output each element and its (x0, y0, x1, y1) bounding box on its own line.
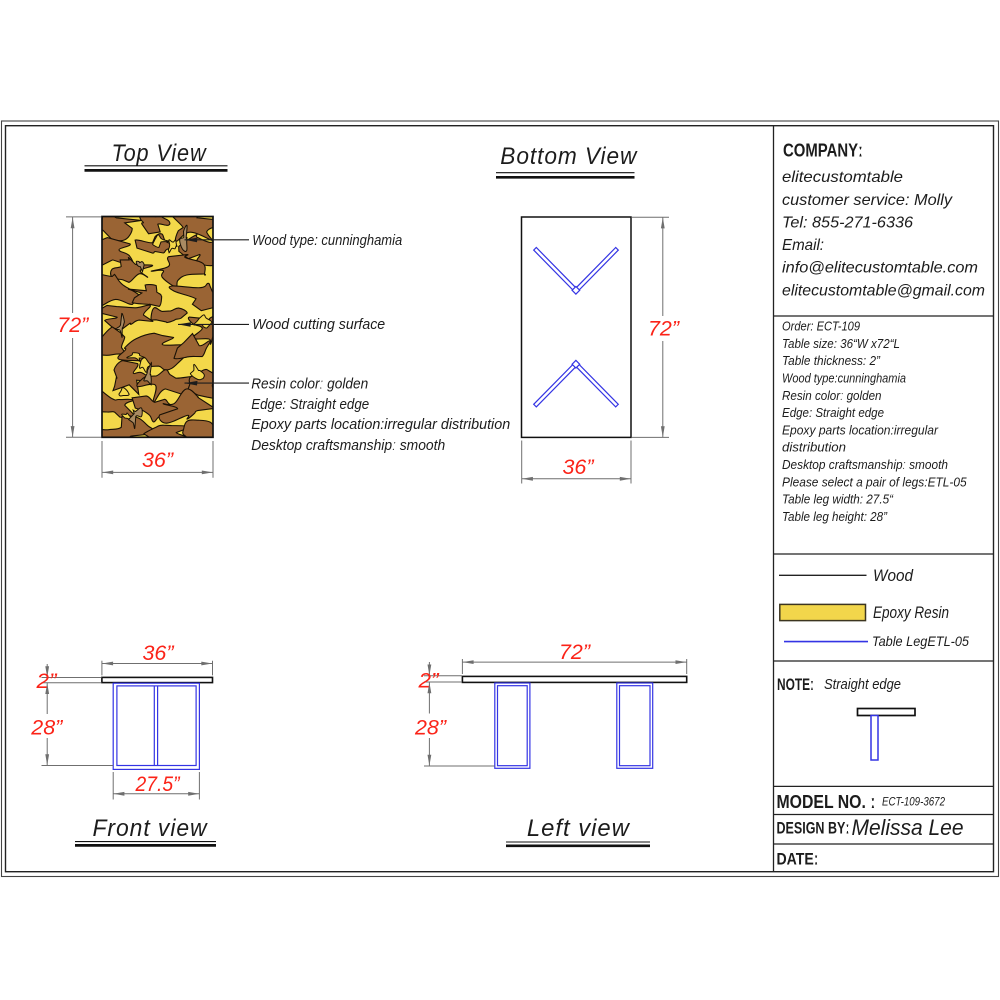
svg-text:Wood cutting surface: Wood cutting surface (252, 316, 385, 333)
svg-text:COMPANYː: COMPANYː (783, 140, 863, 160)
svg-text:Table thickness: 2”: Table thickness: 2” (782, 353, 881, 368)
svg-text:MODEL NO. ː: MODEL NO. ː (777, 792, 876, 812)
svg-text:28”: 28” (30, 717, 63, 740)
svg-text:DATEː: DATEː (777, 850, 819, 869)
svg-text:info@elitecustomtable.com: info@elitecustomtable.com (782, 260, 978, 277)
svg-text:elitecustomtable@gmail.com: elitecustomtable@gmail.com (782, 283, 985, 300)
svg-text:28”: 28” (414, 717, 447, 740)
svg-text:customer service: Molly: customer service: Molly (782, 192, 953, 209)
svg-text:Please select a pair of legs:E: Please select a pair of legs:ETL-05 (782, 474, 967, 489)
svg-text:Desktop craftsmanshipː smooth: Desktop craftsmanshipː smooth (251, 437, 445, 454)
svg-text:distribution: distribution (782, 440, 846, 455)
svg-text:NOTEː: NOTEː (777, 676, 814, 694)
svg-text:36”: 36” (142, 449, 174, 472)
svg-text:Table leg width: 27.5“: Table leg width: 27.5“ (782, 492, 894, 507)
svg-text:Melissa Lee: Melissa Lee (852, 815, 964, 840)
svg-text:27.5”: 27.5” (135, 773, 181, 796)
svg-text:Desktop craftsmanshipː smooth: Desktop craftsmanshipː smooth (782, 457, 948, 472)
svg-text:Left view: Left view (527, 815, 631, 842)
svg-text:Table leg height: 28”: Table leg height: 28” (782, 509, 888, 524)
svg-text:Table size: 36“W x72“L: Table size: 36“W x72“L (782, 336, 900, 351)
svg-text:Wood: Wood (873, 566, 913, 585)
svg-text:Wood type: cunninghamia: Wood type: cunninghamia (252, 232, 402, 249)
svg-text:Tel: 855-271-6336: Tel: 855-271-6336 (782, 215, 913, 232)
svg-text:Wood type:cunninghamia: Wood type:cunninghamia (782, 371, 906, 386)
svg-text:Straight edge: Straight edge (824, 676, 901, 693)
svg-text:72”: 72” (648, 318, 680, 341)
svg-text:DESIGN BYː: DESIGN BYː (777, 819, 850, 838)
svg-text:Edge: Straight edge: Edge: Straight edge (251, 396, 369, 413)
svg-text:Front view: Front view (93, 815, 209, 842)
svg-text:Epoxy Resin: Epoxy Resin (873, 603, 949, 622)
svg-text:36”: 36” (563, 456, 595, 479)
svg-text:Bottom View: Bottom View (500, 143, 638, 170)
svg-text:Resin colorː golden: Resin colorː golden (251, 376, 368, 393)
svg-text:72”: 72” (57, 314, 89, 337)
svg-text:ECT-109-3672: ECT-109-3672 (882, 797, 946, 809)
svg-text:72”: 72” (559, 641, 591, 664)
svg-text:2”: 2” (417, 670, 439, 693)
svg-text:Edge: Straight edge: Edge: Straight edge (782, 405, 884, 420)
svg-text:Table LegETL-05: Table LegETL-05 (872, 633, 969, 649)
svg-text:Top View: Top View (112, 140, 208, 167)
svg-text:2”: 2” (35, 670, 57, 693)
svg-text:Email:: Email: (782, 237, 824, 254)
svg-text:36”: 36” (143, 642, 175, 665)
svg-text:Epoxy parts location:irregular: Epoxy parts location:irregular distribut… (251, 416, 510, 433)
svg-text:elitecustomtable: elitecustomtable (782, 169, 903, 186)
svg-text:Epoxy parts location:irregular: Epoxy parts location:irregular (782, 422, 939, 437)
svg-text:Order: ECT-109: Order: ECT-109 (782, 319, 860, 334)
svg-text:Resin colorː golden: Resin colorː golden (782, 388, 882, 403)
